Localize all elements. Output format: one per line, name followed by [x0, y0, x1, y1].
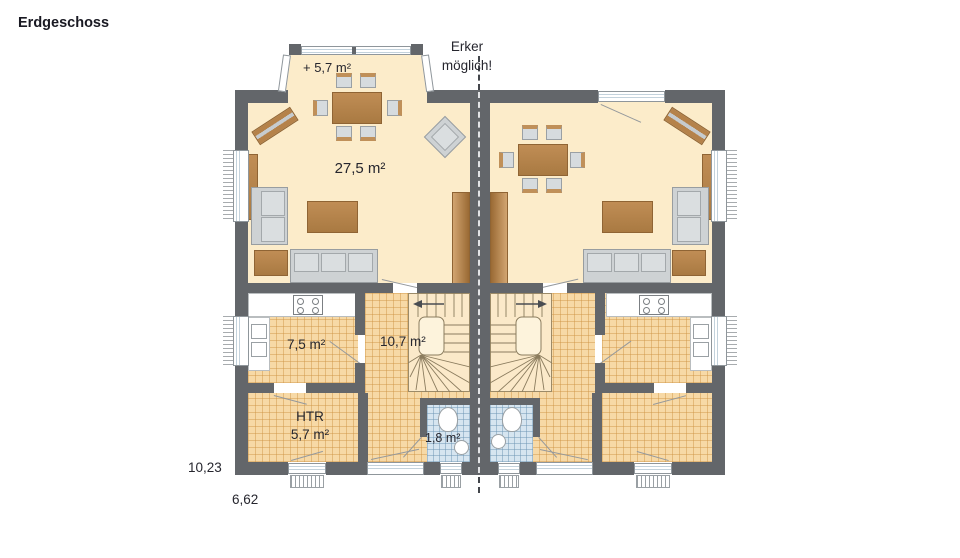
window-steps — [441, 475, 461, 488]
dining-chair — [336, 126, 352, 141]
interior-wall-segment — [248, 283, 393, 293]
dining-chair — [360, 73, 376, 88]
window — [498, 463, 520, 474]
page-title: Erdgeschoss — [18, 15, 109, 31]
dining-table — [332, 92, 382, 124]
interior-wall-segment — [248, 383, 274, 393]
window — [711, 150, 727, 222]
exterior-wall-segment — [712, 366, 725, 475]
window-shutter-hatch — [727, 316, 737, 366]
kitchen-sink — [251, 324, 267, 339]
interior-wall-segment — [686, 383, 712, 393]
party-wall — [470, 90, 490, 475]
dining-chair — [336, 73, 352, 88]
exterior-wall-segment — [235, 462, 288, 475]
exterior-wall-segment — [235, 366, 248, 475]
loveseat — [251, 187, 288, 245]
exterior-wall-segment — [424, 462, 440, 475]
window-shutter-hatch — [223, 316, 233, 366]
room-label-kitchen: 7,5 m² — [287, 337, 325, 352]
window — [233, 316, 249, 366]
interior-wall-segment — [355, 293, 365, 335]
window-steps — [290, 475, 324, 488]
dining-chair — [387, 100, 402, 116]
interior-wall-segment — [420, 398, 470, 405]
dining-chair — [313, 100, 328, 116]
window-steps — [636, 475, 670, 488]
tall-cabinet — [452, 192, 470, 284]
side-table — [672, 250, 706, 276]
exterior-wall-segment — [235, 90, 248, 150]
room-label-wc: 1,8 m² — [425, 431, 460, 445]
dining-table — [518, 144, 568, 176]
bay-window — [301, 46, 411, 55]
exterior-wall-segment — [520, 462, 536, 475]
interior-wall-segment — [592, 393, 602, 462]
dimension-label-depth: 10,23 — [188, 460, 222, 475]
tall-cabinet — [490, 192, 508, 284]
interior-wall-segment — [533, 405, 540, 437]
window — [233, 150, 249, 222]
room-label-bay: + 5,7 m² — [303, 60, 351, 75]
washbasin — [491, 434, 506, 449]
toilet — [438, 407, 458, 432]
interior-wall-segment — [306, 383, 365, 393]
staircase-right — [490, 293, 552, 392]
interior-wall-segment — [490, 398, 540, 405]
room-label-htr-title: HTR — [272, 408, 348, 426]
exterior-wall-segment — [593, 462, 634, 475]
toilet — [502, 407, 522, 432]
room-label-htr: HTR 5,7 m² — [272, 408, 348, 444]
dimension-label-width: 6,62 — [232, 492, 258, 507]
cooktop — [293, 295, 323, 315]
window — [288, 463, 326, 474]
dining-chair — [522, 178, 538, 193]
exterior-wall-segment — [326, 462, 367, 475]
window — [598, 91, 665, 102]
loveseat — [672, 187, 709, 245]
exterior-wall-segment — [427, 90, 470, 103]
entrance-door — [536, 462, 593, 475]
erker-annotation-line1: Erker — [428, 38, 506, 57]
side-table — [254, 250, 288, 276]
divider-dashed-line — [478, 92, 480, 473]
exterior-wall-segment — [490, 90, 598, 103]
window — [634, 463, 672, 474]
sofa — [290, 249, 378, 283]
interior-wall-segment — [595, 383, 654, 393]
kitchen-sink — [251, 342, 267, 357]
exterior-wall-segment — [712, 90, 725, 150]
window — [711, 316, 727, 366]
interior-wall-segment — [358, 393, 368, 462]
bay-window-post — [352, 47, 356, 54]
divider-dashed-line — [478, 477, 480, 493]
floor-plan: Erdgeschoss — [0, 0, 960, 558]
dining-chair — [570, 152, 585, 168]
coffee-table — [307, 201, 358, 233]
interior-wall-segment — [417, 283, 470, 293]
dining-chair — [360, 126, 376, 141]
entrance-door — [367, 462, 424, 475]
interior-wall-segment — [567, 283, 712, 293]
window-shutter-hatch — [727, 150, 737, 222]
dining-chair — [546, 125, 562, 140]
window — [440, 463, 462, 474]
window-steps — [499, 475, 519, 488]
sofa — [583, 249, 671, 283]
room-label-hall: 10,7 m² — [380, 334, 426, 349]
exterior-wall-segment — [235, 222, 248, 316]
room-label-htr-area: 5,7 m² — [272, 426, 348, 444]
kitchen-sink — [693, 324, 709, 339]
erker-annotation: Erker möglich! — [428, 38, 506, 76]
bay-window-post — [411, 44, 423, 55]
dining-chair — [546, 178, 562, 193]
interior-wall-segment — [490, 283, 543, 293]
exterior-wall-segment — [672, 462, 725, 475]
cooktop — [639, 295, 669, 315]
dining-chair — [499, 152, 514, 168]
coffee-table — [602, 201, 653, 233]
interior-wall-segment — [595, 293, 605, 335]
dining-chair — [522, 125, 538, 140]
window-shutter-hatch — [223, 150, 233, 222]
room-label-living: 27,5 m² — [315, 160, 405, 177]
erker-annotation-line2: möglich! — [428, 57, 506, 76]
exterior-wall-segment — [712, 222, 725, 316]
kitchen-sink — [693, 342, 709, 357]
bay-window-post — [289, 44, 301, 55]
